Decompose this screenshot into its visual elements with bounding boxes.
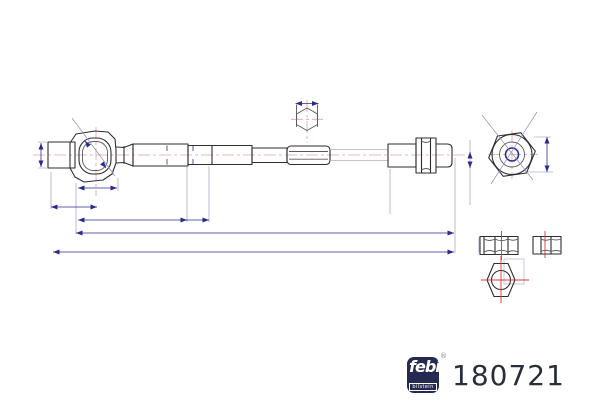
nut-front-view	[481, 256, 529, 303]
technical-drawing	[0, 0, 600, 400]
febi-bilstein-logo: febi bilstein	[407, 357, 439, 393]
end-view-hex	[482, 112, 537, 184]
bilstein-logo-text: bilstein	[409, 383, 437, 391]
nut-side-view-2	[533, 231, 561, 258]
registered-trademark-symbol: ®	[440, 352, 447, 360]
febi-logo-text: febi	[409, 357, 440, 376]
dimension-lines	[41, 104, 547, 253]
nut-side-view-1	[480, 231, 518, 260]
threaded-end	[388, 138, 452, 173]
part-number: 180721	[452, 359, 565, 392]
main-side-view	[48, 131, 452, 182]
ball-joint-housing	[70, 131, 116, 182]
extension-lines	[38, 137, 553, 253]
